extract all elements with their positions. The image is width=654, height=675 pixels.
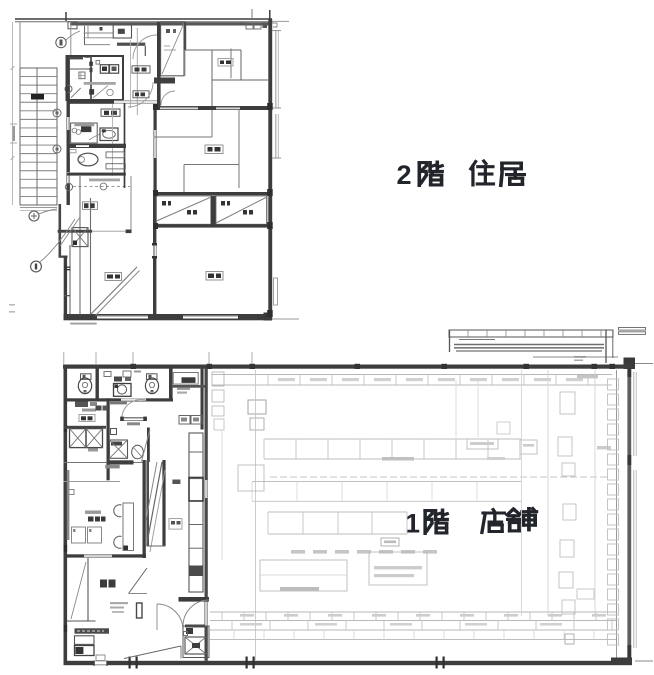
svg-text:2: 2 <box>397 160 412 190</box>
